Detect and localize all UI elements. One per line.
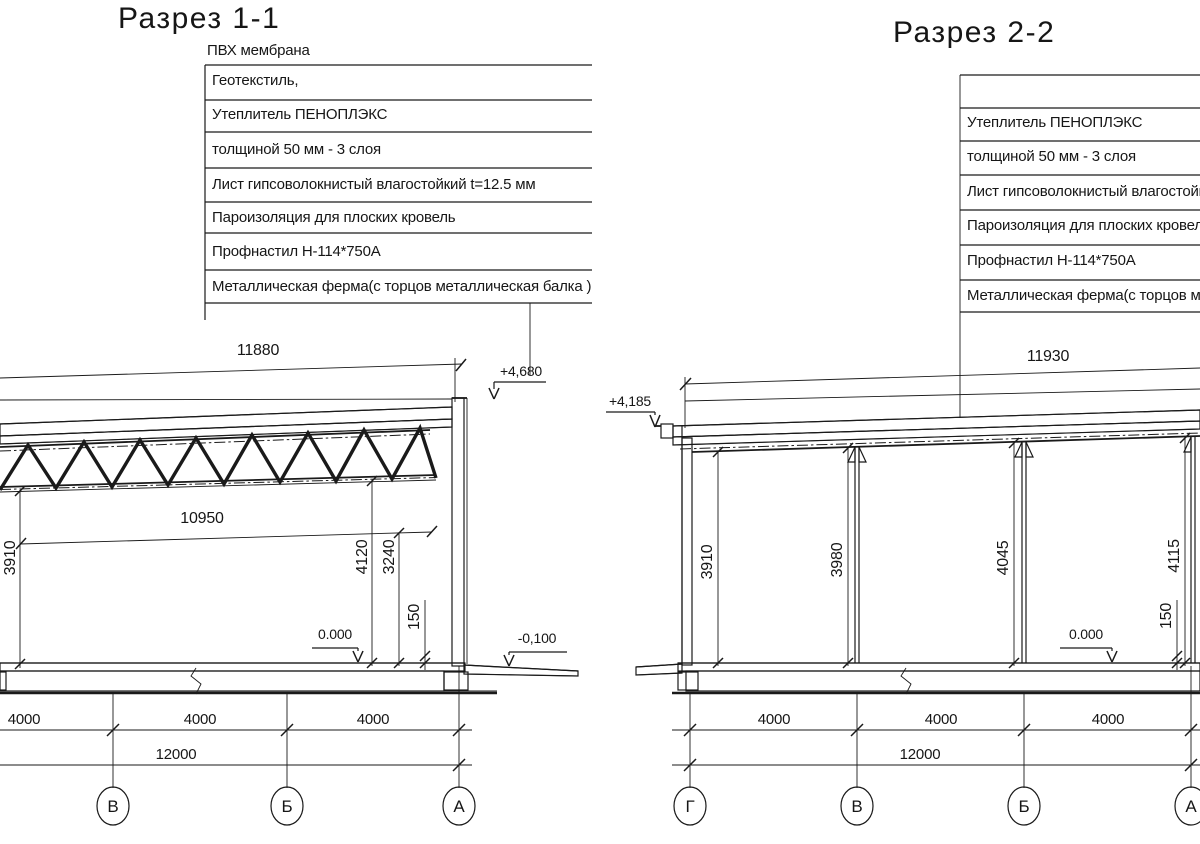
section1-apron-level: -0,100 [518, 630, 557, 646]
section1-callout-row: Геотекстиль, [212, 72, 298, 89]
axis-bubble-label: А [453, 797, 464, 817]
section2-callout-row: Лист гипсоволокнистый влагостойкий t=12.… [967, 183, 1200, 200]
section1-span-dim: 11880 [237, 342, 279, 360]
section1-floor [0, 663, 578, 694]
section1-axes-dimensions [0, 666, 475, 825]
section2-title: Разрез 2-2 [893, 16, 1055, 50]
axis-bubble-label: В [107, 797, 118, 817]
section2-height-dim: 4115 [1166, 539, 1184, 573]
section1-height-dim: 3910 [2, 541, 20, 576]
section2-floor [636, 663, 1200, 694]
axis-bubble-label: Б [282, 797, 293, 817]
axis-bubble-label: Г [685, 797, 694, 817]
axis-bubble-label: Б [1019, 797, 1030, 817]
section1-wall [452, 398, 467, 666]
section2-height-dim: 3980 [829, 543, 847, 578]
axis-bubble-label: В [851, 797, 862, 817]
section1-bay-dim: 4000 [184, 711, 217, 728]
section2-floor-level: 0.000 [1069, 626, 1103, 642]
section1-bay-dim: 4000 [8, 711, 41, 728]
section2-callout-row: Утеплитель ПЕНОПЛЭКС [967, 114, 1142, 131]
section1-callout-row: Утеплитель ПЕНОПЛЭКС [212, 106, 387, 123]
section2-height-dim: 3910 [699, 545, 717, 580]
section2-callout-row: Пароизоляция для плоских кровель [967, 217, 1200, 234]
section2-callout-row: Профнастил Н-114*750А [967, 252, 1136, 269]
section2-top-dimension [680, 368, 1200, 428]
section2-bay-dim: 4000 [925, 711, 958, 728]
section1-total-dim: 12000 [156, 746, 197, 763]
section1-inner-dimensions [15, 476, 437, 670]
section2-callout-row: толщиной 50 мм - 3 слоя [967, 148, 1136, 165]
section2-callout-row: Металлическая ферма(с торцов металлическ… [967, 287, 1200, 304]
section2-inner-dimensions [713, 433, 1190, 670]
section2-roof [655, 410, 1200, 452]
section2-roof-level: +4,185 [609, 393, 651, 409]
section1-floor-level: 0.000 [318, 626, 352, 642]
section1-callout-top-label: ПВХ мембрана [207, 42, 310, 59]
section2-total-dim: 12000 [900, 746, 941, 763]
section1-slab-dim: 150 [406, 604, 424, 630]
section1-bay-dim: 4000 [357, 711, 390, 728]
section1-clear-span-dim: 10950 [180, 510, 224, 528]
section1-height-dim: 4120 [354, 540, 372, 575]
section1-roof-level: +4,680 [500, 363, 542, 379]
section1-callout-row: Профнастил Н-114*750А [212, 243, 381, 260]
section1-title: Разрез 1-1 [118, 2, 280, 36]
section1-callout-row: Пароизоляция для плоских кровель [212, 209, 455, 226]
section1-callout-row: Лист гипсоволокнистый влагостойкий t=12.… [212, 176, 535, 193]
section2-roof-level-mark [606, 412, 660, 427]
section2-span-dim: 11930 [1027, 348, 1069, 366]
section2-bay-dim: 4000 [758, 711, 791, 728]
section1-height-dim: 3240 [381, 540, 399, 575]
section2-bay-dim: 4000 [1092, 711, 1125, 728]
section1-roof [0, 407, 452, 451]
section2-height-dim: 4045 [995, 541, 1013, 576]
section2-columns [848, 437, 1195, 663]
section1-callout-row: Металлическая ферма(с торцов металлическ… [212, 278, 591, 295]
section1-top-dimension [0, 358, 466, 402]
section1-roof-level-mark [489, 382, 546, 399]
drawing-sheet: Разрез 1-1 ПВХ мембрана Геотекстиль, Уте… [0, 0, 1200, 844]
section2-floor-level-mark [1060, 648, 1117, 662]
section2-wall [682, 426, 692, 665]
section2-slab-dim: 150 [1158, 603, 1176, 629]
axis-bubble-label: А [1185, 797, 1196, 817]
section1-callout-row: толщиной 50 мм - 3 слоя [212, 141, 381, 158]
